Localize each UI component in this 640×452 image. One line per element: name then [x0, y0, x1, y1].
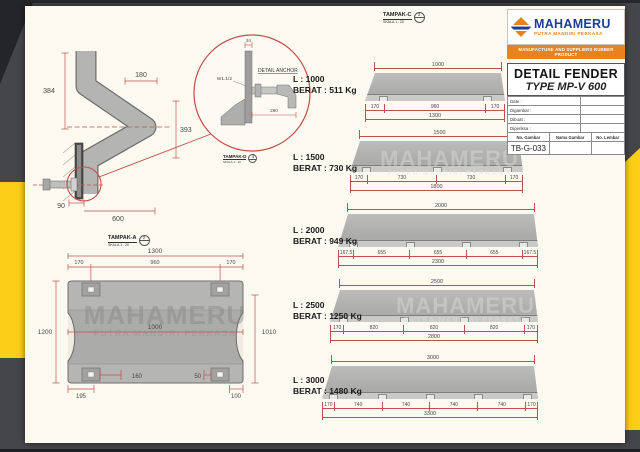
dimension-label: 170	[331, 326, 343, 331]
dimension-label: 655	[467, 251, 522, 256]
anchor-plate	[245, 51, 252, 123]
anchor-tab	[362, 167, 371, 172]
fender-spec-label: L : 2000BERAT : 949 Kg	[293, 225, 357, 248]
dimension-label: 2300	[339, 260, 537, 266]
dimension-label: 820	[344, 326, 403, 331]
dimension-label: 170	[525, 326, 537, 331]
dimension-label: 960	[385, 105, 485, 110]
brand-banner: MANUFACTURE AND SUPPLIERS RUBBER PRODUCT	[507, 45, 625, 59]
page: 384 180 393 90 600 34 W1.1/2 DETAIL ANCH…	[25, 6, 625, 443]
view-ref-circle: 3	[414, 12, 425, 23]
fender-body	[338, 214, 538, 247]
info-label: Date :	[508, 97, 581, 106]
dimension-label: 2800	[331, 335, 537, 341]
column-header: No. Lembar	[591, 133, 624, 142]
dimension-label: 195	[76, 394, 87, 400]
anchor-tab	[433, 167, 442, 172]
fender-spec-label: L : 2500BERAT : 1250 Kg	[293, 300, 362, 323]
drawing-title-line2: TYPE MP-V 600	[508, 81, 624, 93]
title-block-info-table: Date : Digambar : Dibuat : Diperiksa :	[507, 96, 625, 133]
dimension-label: 655	[410, 251, 465, 256]
view-ref-circle: 2	[139, 235, 150, 246]
dimension-label: 170	[526, 403, 537, 408]
info-value	[580, 115, 624, 124]
info-label: Dibuat :	[508, 115, 581, 124]
dimension-label: 1800	[351, 185, 522, 191]
drawing-number: TB-G-033	[508, 142, 550, 155]
dimension-label: 730	[437, 176, 505, 181]
info-value	[580, 97, 624, 106]
column-header: Nama Gambar	[549, 133, 591, 142]
dimension-label: 384	[43, 88, 55, 95]
frame-yellow-accent-right	[625, 148, 640, 430]
anchor-tab	[519, 242, 528, 247]
dimension-label: 170	[74, 260, 83, 266]
dimension-label: 1010	[262, 329, 277, 336]
sheet-number-cell	[591, 142, 624, 155]
title-block: MAHAMERU PUTRA MANDIRI PERKASA MANUFACTU…	[507, 9, 625, 155]
frame-yellow-accent-left	[0, 182, 25, 358]
fender-side-view: 15001707307301701800	[350, 130, 523, 193]
anchor-tab	[503, 167, 512, 172]
company-logo: MAHAMERU PUTRA MANDIRI PERKASA	[507, 9, 625, 45]
dimension-label: 170	[226, 260, 235, 266]
dimension-label: 2500	[340, 280, 534, 286]
dimension-label: 167.5	[523, 251, 537, 256]
dimension-label: 740	[430, 403, 477, 408]
anchor-tab	[400, 317, 409, 322]
section-view-drawing: 384 180 393 90 600 34 W1.1/2 DETAIL ANCH…	[25, 31, 325, 223]
dimension-label: 1300	[148, 248, 163, 255]
anchor-tab	[378, 394, 387, 399]
dimension-label: 170	[506, 176, 522, 181]
dimension-label: 160	[132, 374, 143, 380]
dimension-label: 1000	[148, 324, 163, 331]
frame-top-edge	[0, 0, 640, 3]
dimension-label: 1500	[360, 131, 519, 137]
view-scale: SKALA 1 : 20	[383, 20, 412, 25]
column-header: No. Gambar	[508, 133, 550, 142]
brand-subtitle: PUTRA MANDIRI PERKASA	[534, 31, 611, 36]
dimension-label: 740	[335, 403, 382, 408]
dimension-label: 655	[354, 251, 409, 256]
drawing-name-cell	[549, 142, 591, 155]
anchor-tab	[521, 317, 530, 322]
dimension-label: 170	[323, 403, 334, 408]
anchor-tab	[406, 242, 415, 247]
anchor-tab	[523, 394, 532, 399]
anchor-tab	[474, 394, 483, 399]
front-view-drawing: 1300 170 960 170 1200 1010 1000 160 50 1…	[37, 231, 297, 421]
view-label-tampak-c: TAMPAK-C SKALA 1 : 20 3	[383, 12, 425, 24]
dimension-label: 2000	[348, 204, 534, 210]
dimension-label: 740	[383, 403, 430, 408]
dimension-label: 290	[270, 108, 278, 113]
dimension-label: 50	[194, 374, 201, 380]
anchor-tab	[483, 96, 492, 101]
anchor-tab	[460, 317, 469, 322]
fender-spec-label: L : 1000BERAT : 511 Kg	[293, 74, 357, 97]
dimension-label: 820	[404, 326, 463, 331]
dimension-label: 170	[351, 176, 367, 181]
fender-body	[350, 141, 523, 172]
fender-side-view: 10001709601701300	[365, 62, 505, 122]
anchor-tab	[379, 96, 388, 101]
anchor-tab	[462, 242, 471, 247]
dimension-label: 90	[57, 203, 65, 210]
view-label-tampak-d: TAMPAK-D SKALA 1 : 10 4	[223, 154, 257, 165]
dimension-label: 730	[368, 176, 436, 181]
fender-spec-label: L : 1500BERAT : 730 Kg	[293, 152, 357, 175]
drawing-sheet: { "colors":{"accent_yellow":"#fbce17","f…	[0, 0, 640, 452]
dimension-label: 1200	[38, 329, 53, 336]
view-scale: SKALA 1 : 20	[108, 243, 137, 248]
dimension-label: 170	[486, 105, 504, 110]
info-label: Digambar :	[508, 106, 581, 115]
dimension-label: 34	[246, 38, 252, 43]
dimension-label: 3300	[323, 412, 537, 418]
view-scale: SKALA 1 : 10	[223, 160, 246, 164]
fender-side-view: 2000167.5655655655167.52300	[338, 203, 538, 268]
dimension-label: 1300	[366, 114, 504, 120]
title-block-number-table: No. Gambar Nama Gambar No. Lembar TB-G-0…	[507, 132, 625, 155]
view-ref-circle: 4	[248, 154, 257, 163]
info-value	[580, 106, 624, 115]
dimension-label: 393	[180, 127, 192, 134]
view-name: TAMPAK-A	[108, 235, 137, 243]
dimension-label: 960	[150, 260, 159, 266]
fender-spec-label: L : 3000BERAT : 1480 Kg	[293, 375, 362, 398]
mahameru-diamond-icon	[511, 17, 531, 37]
dimension-label: 3000	[332, 356, 534, 362]
fender-body	[365, 73, 505, 101]
brand-name: MAHAMERU	[534, 18, 611, 31]
dimension-label: 600	[112, 216, 124, 223]
dimension-label: 170	[366, 105, 384, 110]
dimension-label: 180	[135, 72, 147, 79]
view-label-tampak-a: TAMPAK-A SKALA 1 : 20 2	[108, 235, 150, 247]
view-name: TAMPAK-C	[383, 12, 412, 20]
thread-label: W1.1/2	[217, 76, 233, 82]
dimension-label: 740	[478, 403, 525, 408]
drawing-title: DETAIL FENDER TYPE MP-V 600	[507, 63, 625, 96]
dimension-label: 167.5	[339, 251, 353, 256]
anchor-tab	[426, 394, 435, 399]
drawing-title-line1: DETAIL FENDER	[508, 67, 624, 81]
dimension-label: 1000	[375, 63, 501, 69]
dimension-label: 100	[231, 394, 242, 400]
dimension-label: 820	[465, 326, 524, 331]
